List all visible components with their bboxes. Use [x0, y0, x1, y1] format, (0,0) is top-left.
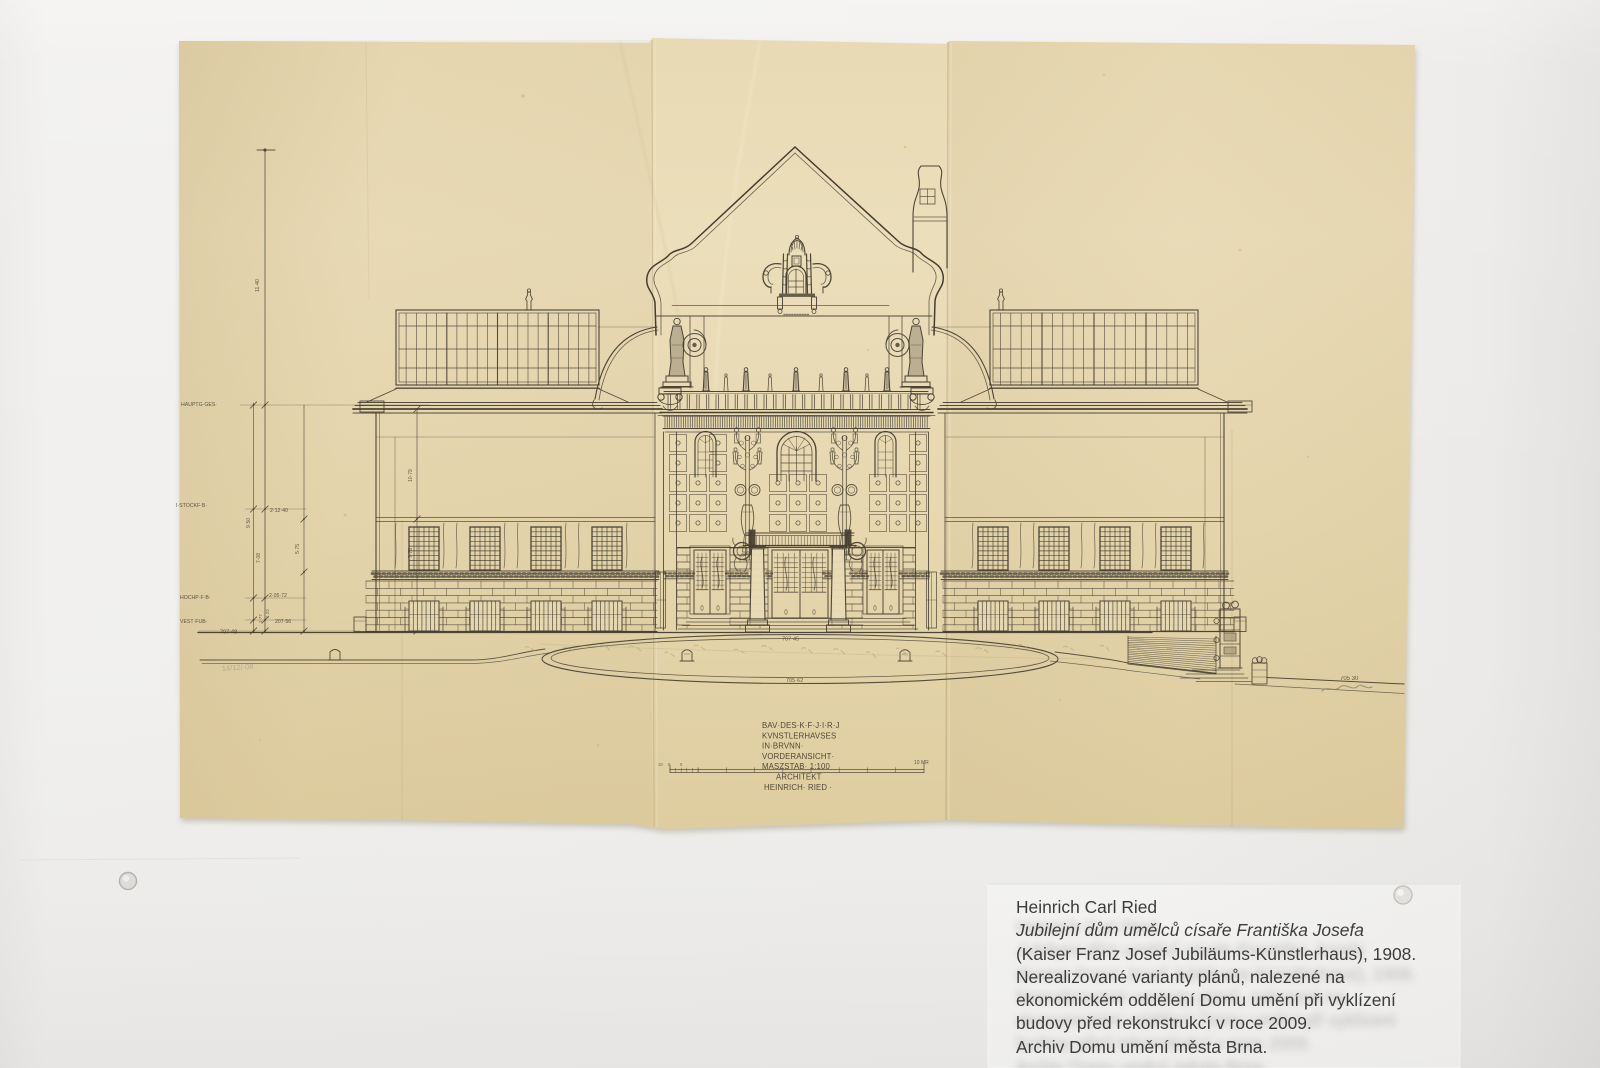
svg-text:IN·BRVNN·: IN·BRVNN·	[762, 742, 804, 751]
svg-text:5·75: 5·75	[295, 544, 301, 554]
svg-text:7·08: 7·08	[256, 553, 262, 563]
svg-text:I·STOCKF·B·: I·STOCKF·B·	[176, 503, 207, 509]
svg-text:207·56: 207·56	[275, 619, 291, 625]
svg-text:2·12·40: 2·12·40	[270, 508, 288, 514]
svg-text:HAUPTG·GES·: HAUPTG·GES·	[181, 402, 217, 408]
svg-text:MASZSTAB· 1:100: MASZSTAB· 1:100	[762, 762, 830, 771]
svg-text:KVNSTLERHAVSES: KVNSTLERHAVSES	[762, 731, 836, 740]
svg-text:707·48: 707·48	[220, 630, 237, 636]
svg-text:10 MR: 10 MR	[914, 760, 929, 766]
svg-text:9·50: 9·50	[246, 518, 252, 528]
svg-text:707·45: 707·45	[782, 637, 799, 643]
svg-text:1·22: 1·22	[265, 609, 270, 618]
svg-text:HOCHP·F·B·: HOCHP·F·B·	[180, 595, 211, 601]
svg-text:705 30: 705 30	[1340, 676, 1359, 682]
svg-text:11·40: 11·40	[255, 279, 261, 292]
svg-text:10·79: 10·79	[408, 469, 414, 482]
svg-text:10: 10	[658, 762, 663, 767]
svg-text:VORDERANSICHT·: VORDERANSICHT·	[762, 752, 834, 761]
svg-text:HEINRICH· RIED ·: HEINRICH· RIED ·	[764, 783, 832, 792]
svg-text:1·77: 1·77	[258, 614, 263, 623]
svg-text:BAV·DES·K·F·J·I·R·J: BAV·DES·K·F·J·I·R·J	[762, 721, 840, 730]
svg-text:ARCHITEKT: ARCHITEKT	[776, 773, 822, 782]
svg-text:2·05·72: 2·05·72	[269, 593, 287, 599]
svg-text:VEST·FUB·: VEST·FUB·	[180, 619, 208, 625]
svg-text:705·62: 705·62	[786, 678, 803, 684]
